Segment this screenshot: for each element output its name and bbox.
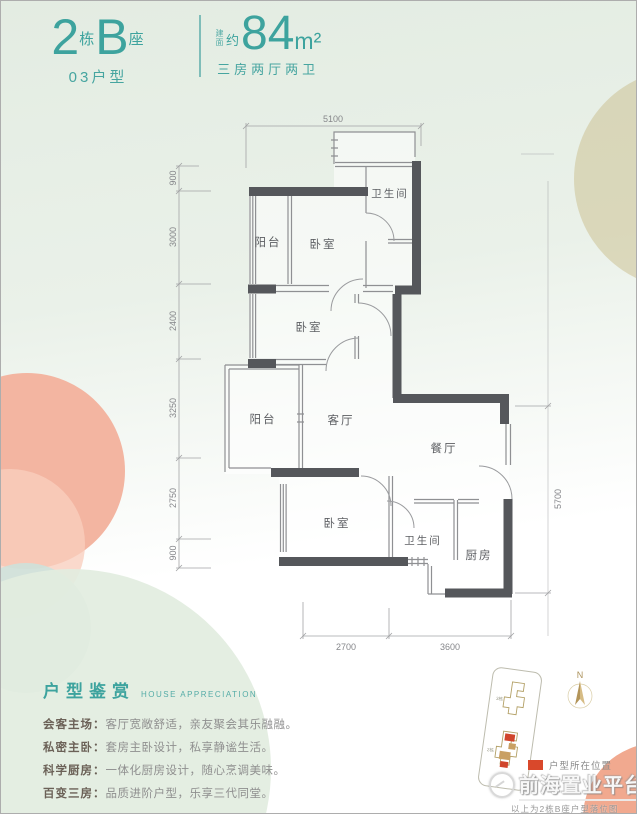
dim-top: 5100 — [323, 114, 343, 124]
appreciation-title-row: 户型鉴赏 HOUSE APPRECIATION — [43, 677, 373, 702]
room-label-bedroom-1: 卧室 — [310, 237, 337, 251]
block-suffix: 座 — [129, 31, 145, 48]
unit-code: 03户型 — [39, 66, 157, 87]
appreciation-point: 科学厨房：一体化厨房设计，随心烹调美味。 — [43, 760, 373, 783]
layout-description: 三房两厅两卫 — [215, 59, 321, 78]
building-number: 2 — [51, 9, 79, 65]
dim-left-3: 2400 — [168, 311, 178, 331]
dim-bottom-1: 2700 — [336, 642, 356, 652]
building-3-label: 3栋 — [496, 695, 504, 703]
point-label: 科学厨房： — [43, 765, 106, 777]
dim-left-2: 3000 — [168, 227, 178, 247]
dim-left-6: 900 — [168, 545, 178, 560]
building-3-footprint — [502, 681, 526, 715]
appreciation-section: 户型鉴赏 HOUSE APPRECIATION 会客主场：客厅宽敞舒适，亲友聚会… — [43, 677, 373, 806]
watermark: 前海置业平台 以上为2栋B座户型落位图 — [489, 769, 637, 814]
building-title-line: 2栋B座 — [39, 11, 157, 66]
flyer-page: 2栋B座 03户型 建面 约 84 m² 三房两厅两卫 — [0, 0, 637, 814]
appreciation-points: 会客主场：客厅宽敞舒适，亲友聚会其乐融融。 私密主卧：套房主卧设计，私享静谧生活… — [43, 714, 373, 806]
point-text: 一体化厨房设计，随心烹调美味。 — [106, 765, 286, 777]
header-divider — [199, 15, 201, 77]
compass-north-label: N — [577, 670, 584, 680]
point-text: 客厅宽敞舒适，亲友聚会其乐融融。 — [106, 719, 298, 731]
dim-bottom-2: 3600 — [440, 642, 460, 652]
building-2-highlight — [504, 733, 515, 741]
building-title: 2栋B座 03户型 — [39, 11, 157, 87]
room-label-balcony-2: 阳台 — [250, 412, 277, 426]
room-label-bedroom-3: 卧室 — [324, 516, 351, 530]
appreciation-point: 百变三房：品质进阶户型，乐享三代同堂。 — [43, 783, 373, 806]
compass: N — [563, 669, 597, 713]
point-label: 私密主卧： — [43, 742, 106, 754]
room-label-balcony-1: 阳台 — [255, 235, 282, 249]
dim-left-1: 900 — [168, 170, 178, 185]
floor-plan: 5100 900 3000 2400 3250 2750 900 5700 27… — [151, 96, 561, 666]
dim-left-4: 3250 — [168, 398, 178, 418]
building-unit: 栋 — [79, 31, 95, 48]
block-letter: B — [95, 9, 128, 65]
area-value: 84 — [241, 11, 294, 57]
dim-left-5: 2750 — [168, 488, 178, 508]
appreciation-point: 私密主卧：套房主卧设计，私享静谧生活。 — [43, 737, 373, 760]
building-2-label: 2栋 — [486, 746, 494, 754]
appreciation-title: 户型鉴赏 — [43, 677, 135, 702]
point-label: 会客主场： — [43, 719, 106, 731]
area-block: 建面 约 84 m² 三房两厅两卫 — [215, 11, 321, 78]
watermark-caption: 以上为2栋B座户型落位图 — [511, 803, 637, 814]
point-label: 百变三房： — [43, 788, 106, 800]
building-2-block — [508, 743, 516, 750]
area-approx: 约 — [226, 30, 239, 49]
room-label-bathroom-1: 卫生间 — [371, 187, 409, 200]
point-text: 套房主卧设计，私享静谧生活。 — [106, 742, 274, 754]
building-2-highlight — [500, 761, 509, 768]
brand-name: 前海置业平台 — [519, 769, 637, 801]
compass-icon: N — [563, 669, 597, 713]
room-label-living-room: 客厅 — [328, 413, 355, 427]
building-2-block — [499, 751, 511, 760]
room-label-bedroom-2: 卧室 — [296, 320, 323, 334]
watermark-row: 前海置业平台 — [489, 769, 637, 801]
appreciation-subtitle: HOUSE APPRECIATION — [141, 690, 257, 699]
area-unit: m² — [294, 28, 321, 55]
point-text: 品质进阶户型，乐享三代同堂。 — [106, 788, 274, 800]
appreciation-point: 会客主场：客厅宽敞舒适，亲友聚会其乐融融。 — [43, 714, 373, 737]
room-label-dining-room: 餐厅 — [431, 441, 458, 455]
room-label-bathroom-2: 卫生间 — [404, 534, 442, 547]
brand-logo-icon — [489, 772, 515, 798]
dim-right: 5700 — [553, 489, 561, 509]
area-row: 建面 约 84 m² — [215, 11, 321, 57]
area-prefix: 建面 — [215, 29, 224, 49]
room-label-kitchen: 厨房 — [466, 549, 493, 562]
